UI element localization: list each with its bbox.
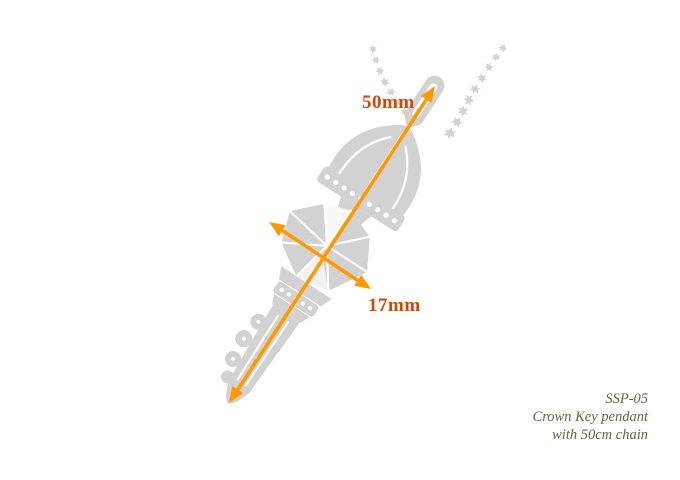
product-code: SSP-05	[533, 390, 648, 408]
product-caption: SSP-05 Crown Key pendant with 50cm chain	[533, 390, 648, 444]
length-dimension-arrow	[229, 86, 435, 403]
product-name: Crown Key pendant	[533, 408, 648, 426]
width-dimension-label: 17mm	[368, 295, 421, 317]
product-chain-note: with 50cm chain	[533, 426, 648, 444]
chain-right-strand	[442, 42, 508, 140]
length-dimension-label: 50mm	[362, 92, 415, 114]
product-page: 50mm 17mm SSP-05 Crown Key pendant with …	[0, 0, 680, 480]
pendant-illustration	[184, 48, 481, 429]
